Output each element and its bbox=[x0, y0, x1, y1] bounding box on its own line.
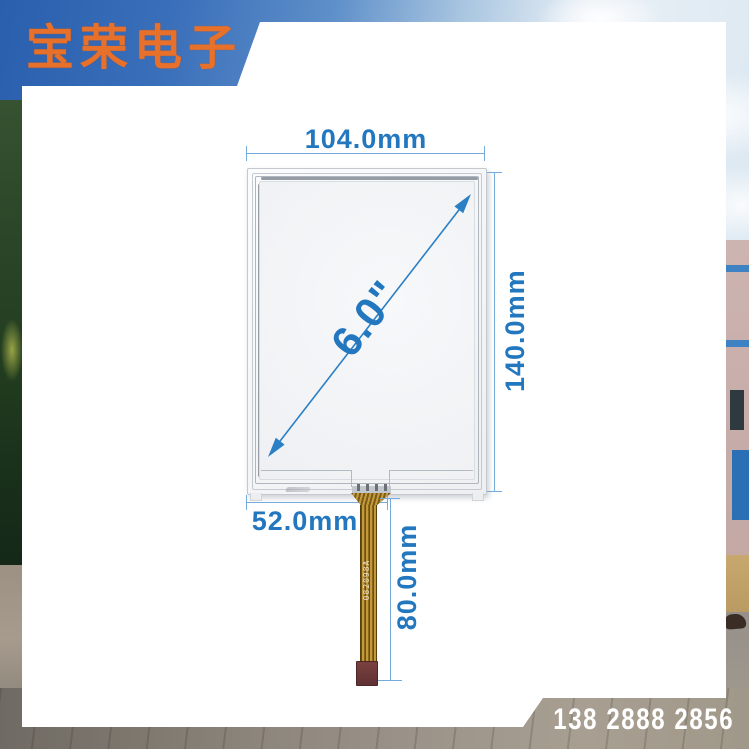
panel-foot-left bbox=[250, 493, 262, 501]
tail-length-dimension-label: 80.0mm bbox=[392, 517, 420, 637]
brand-logo: 宝荣电子 bbox=[26, 22, 242, 74]
height-dimension-tick-bottom bbox=[487, 491, 502, 492]
fpc-connector bbox=[356, 661, 378, 686]
tail-length-tick-bottom bbox=[378, 680, 402, 681]
fpc-cable-marking: 082098A bbox=[362, 540, 372, 620]
width-dimension-tick-right bbox=[484, 146, 485, 161]
tail-length-tick-top bbox=[380, 498, 400, 499]
height-dimension-label: 140.0mm bbox=[500, 272, 528, 392]
width-dimension-tick-left bbox=[246, 146, 247, 161]
phone-number: 138 2888 2856 bbox=[553, 703, 734, 737]
height-dimension-line bbox=[494, 172, 495, 492]
tail-offset-dimension-label: 52.0mm bbox=[240, 506, 370, 537]
width-dimension-label: 104.0mm bbox=[247, 124, 485, 155]
height-dimension-tick-top bbox=[487, 172, 502, 173]
panel-foot-right bbox=[472, 493, 484, 501]
product-image: 宝荣电子 6.0" 104.0mm 140.0mm 52.0mm bbox=[0, 0, 749, 749]
width-dimension-line bbox=[247, 153, 485, 154]
tail-length-dimension-line bbox=[390, 498, 391, 681]
